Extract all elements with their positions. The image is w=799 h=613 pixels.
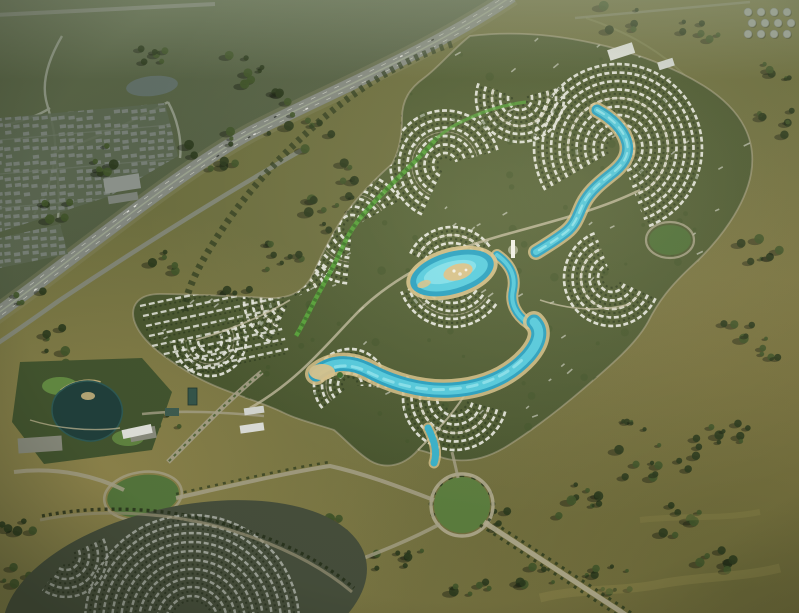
aerial-render-canvas [0,0,799,613]
aerial-render [0,0,799,613]
vignette [0,0,799,613]
